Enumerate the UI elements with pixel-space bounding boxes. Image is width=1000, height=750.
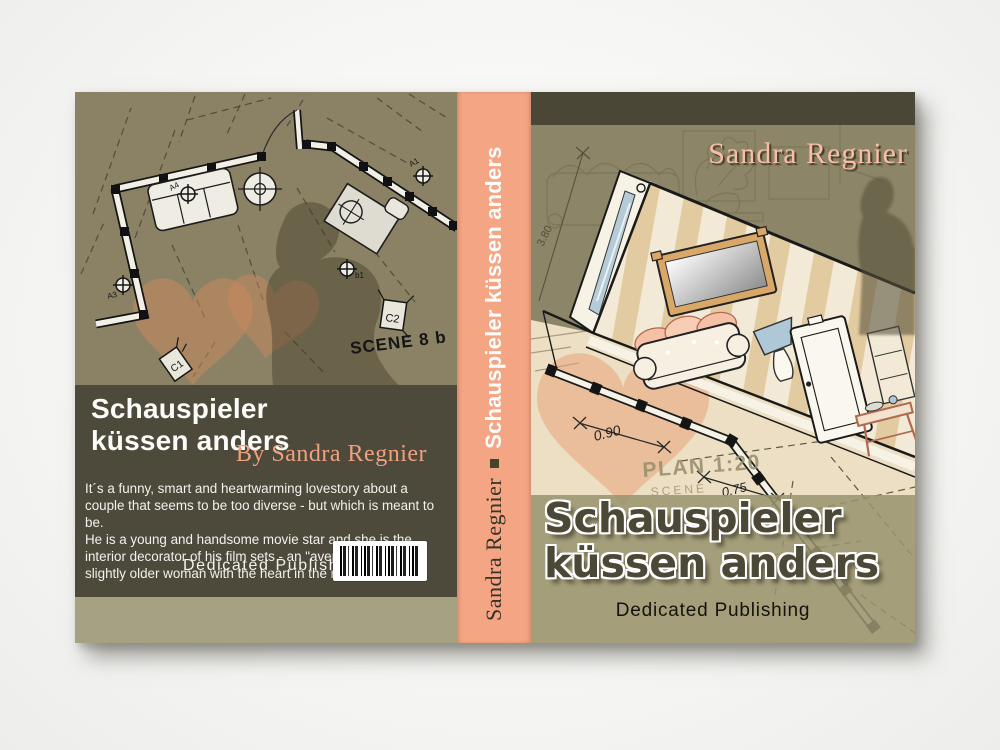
- book-cover-spread: A4 A3 b1 A1 C1 C2 SCENE 8: [75, 92, 915, 643]
- spine-separator-square: [490, 459, 499, 468]
- back-info-band: Schauspieler küssen anders By Sandra Reg…: [75, 385, 457, 597]
- light-label-b1: b1: [355, 271, 364, 280]
- front-publisher-imprint: Dedicated Publishing: [531, 600, 895, 622]
- blurb-paragraph-1: It´s a funny, smart and heartwarming lov…: [85, 480, 445, 531]
- front-title: Schauspieler küssen anders: [544, 496, 879, 586]
- front-top-band: [531, 92, 915, 125]
- front-title-line1: Schauspieler: [544, 496, 879, 541]
- page-background: A4 A3 b1 A1 C1 C2 SCENE 8: [0, 0, 1000, 750]
- front-author: Sandra Regnier: [708, 137, 908, 171]
- back-bottom-strip: [75, 597, 457, 643]
- barcode: [333, 541, 427, 581]
- spine-rotated-text: Sandra Regnier Schauspieler küssen ander…: [457, 92, 531, 643]
- spine-title: Schauspieler küssen anders: [481, 146, 507, 448]
- camera2-label: C2: [385, 312, 401, 326]
- spine: Sandra Regnier Schauspieler küssen ander…: [457, 92, 531, 643]
- front-cover: 3.80: [531, 92, 915, 643]
- front-title-band: Schauspieler küssen anders Dedicated Pub…: [531, 495, 915, 643]
- barcode-bars: [340, 546, 420, 576]
- back-title-line1: Schauspieler: [91, 393, 290, 425]
- back-byline: By Sandra Regnier: [236, 441, 427, 468]
- floorplan-illustration: A4 A3 b1 A1 C1 C2 SCENE 8: [75, 92, 457, 385]
- spine-author: Sandra Regnier: [481, 478, 507, 621]
- back-cover: A4 A3 b1 A1 C1 C2 SCENE 8: [75, 92, 457, 643]
- front-title-line2: küssen anders: [544, 541, 879, 586]
